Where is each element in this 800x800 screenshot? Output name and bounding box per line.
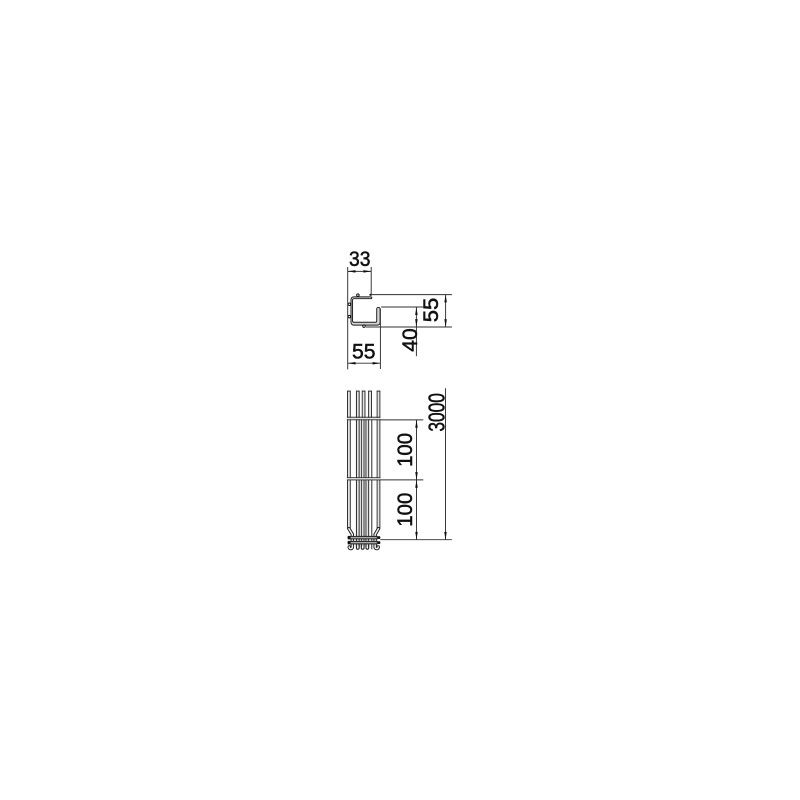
svg-text:100: 100: [394, 433, 417, 467]
svg-text:40: 40: [399, 328, 422, 352]
svg-text:3000: 3000: [423, 393, 449, 432]
svg-text:100: 100: [394, 493, 417, 527]
svg-text:33: 33: [349, 248, 371, 271]
svg-text:55: 55: [352, 341, 376, 364]
svg-text:55: 55: [420, 298, 443, 323]
